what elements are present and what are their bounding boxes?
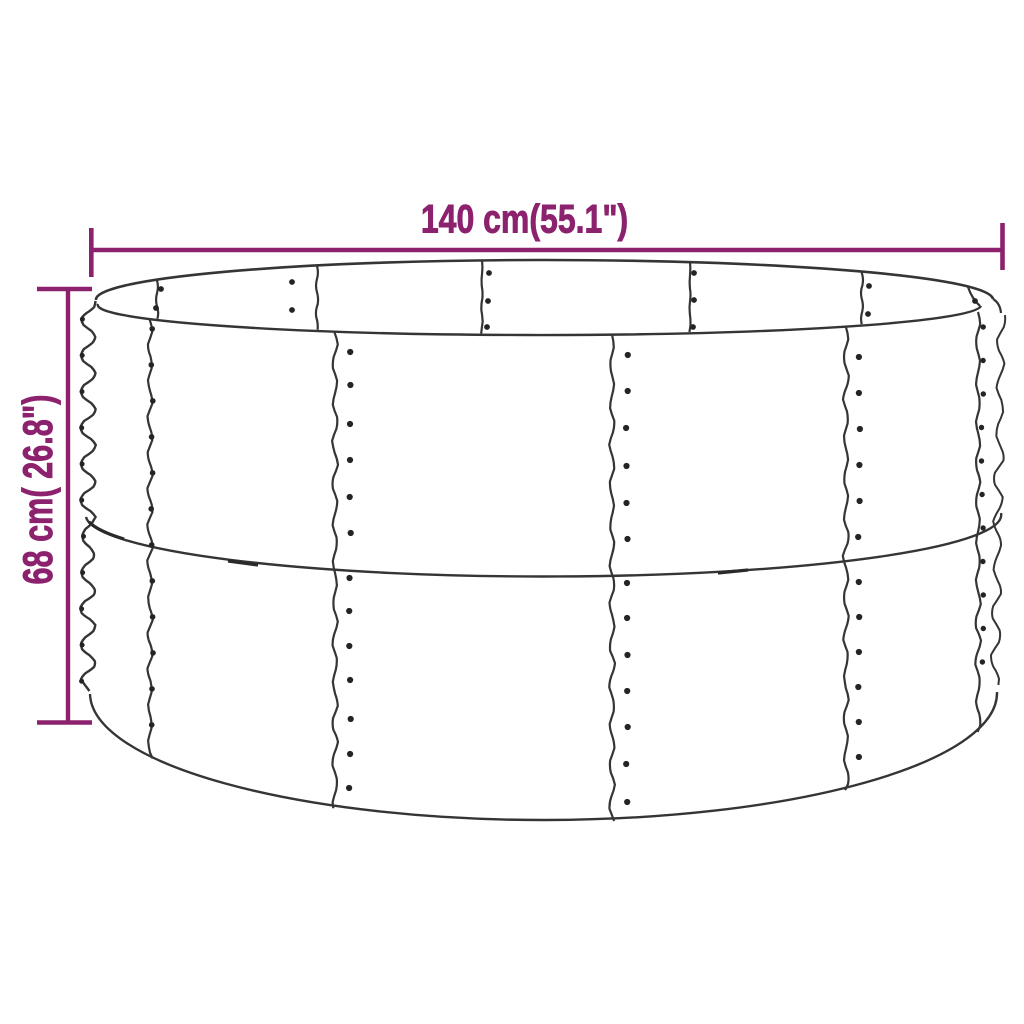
svg-text:68 cm( 26.8"): 68 cm( 26.8"): [15, 395, 62, 585]
svg-text:140 cm(55.1"): 140 cm(55.1"): [421, 196, 628, 241]
